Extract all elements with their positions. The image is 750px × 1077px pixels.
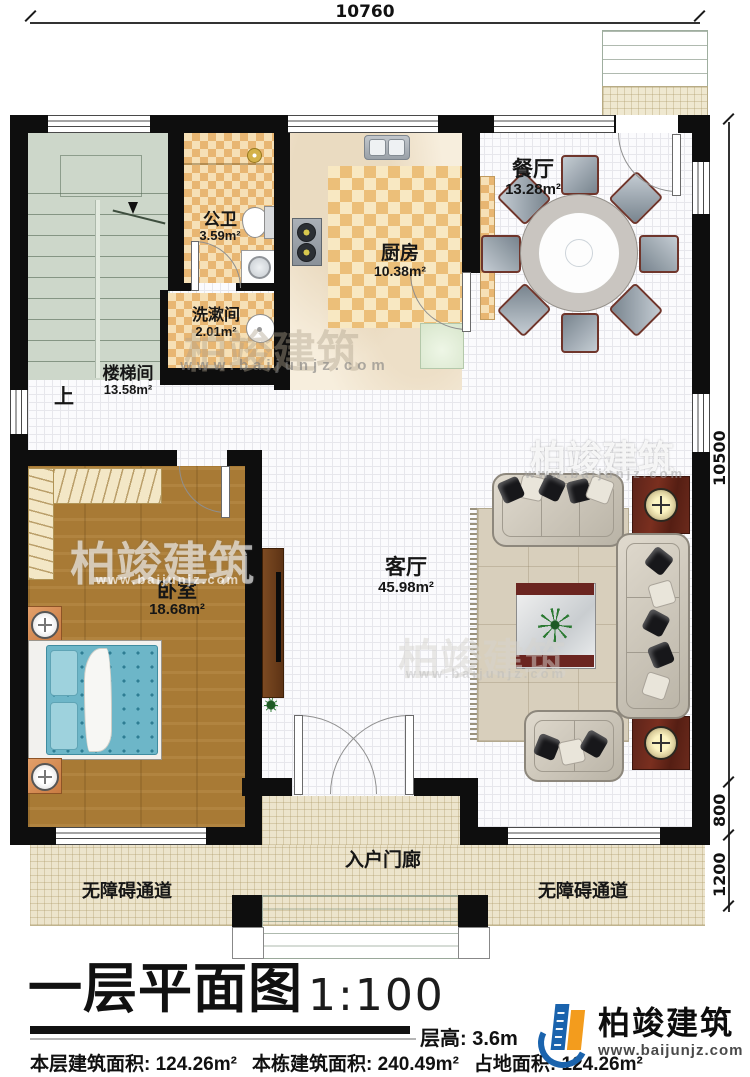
wall <box>160 290 168 370</box>
wall <box>236 283 274 291</box>
dimension-tick <box>693 10 705 22</box>
kitchen-sink-bowl <box>388 139 405 156</box>
dimension-right-value: 10500 <box>710 398 729 518</box>
wall <box>414 778 478 796</box>
room-name: 洗漱间 <box>192 307 240 324</box>
window <box>508 827 660 845</box>
stair-landing-line <box>60 155 142 197</box>
stat-label: 本层建筑面积: <box>30 1054 150 1075</box>
dining-chair <box>639 235 679 273</box>
floor-plan-canvas: 楼梯间 13.58m² 上 公卫 3.59m² 洗漱间 2.01m² 厨房 10… <box>0 0 750 1077</box>
wall <box>10 450 177 466</box>
window <box>692 394 710 452</box>
porch-column-base <box>458 927 490 959</box>
nightstand-lamp-icon <box>31 763 59 791</box>
room-label-bathroom: 公卫 3.59m² <box>199 210 240 244</box>
floor-height: 层高: 3.6m <box>420 1022 518 1051</box>
room-label-walkway-left: 无障碍通道 <box>82 877 172 903</box>
door-leaf <box>294 715 303 795</box>
window <box>48 115 150 133</box>
wall <box>10 115 28 845</box>
dining-chair <box>561 155 599 195</box>
tv-icon <box>276 572 281 662</box>
room-name: 客厅 <box>385 556 427 579</box>
room-label-porch: 入户门廊 <box>345 845 421 872</box>
wall <box>462 133 480 273</box>
bathroom-counter-line <box>184 163 274 165</box>
dining-chair <box>561 313 599 353</box>
rug-fringe <box>470 508 477 740</box>
dimension-tick <box>24 10 36 22</box>
room-name: 餐厅 <box>512 158 554 181</box>
room-area: 13.28m² <box>505 182 561 199</box>
room-label-living: 客厅 45.98m² <box>378 556 434 596</box>
room-area: 45.98m² <box>378 580 434 597</box>
room-label-kitchen: 厨房 10.38m² <box>374 243 426 280</box>
room-label-bedroom: 卧室 18.68m² <box>149 580 205 619</box>
window <box>288 115 438 133</box>
window <box>692 162 710 214</box>
dimension-top-value: 10760 <box>315 2 415 22</box>
room-area: 2.01m² <box>192 325 240 340</box>
entrance-steps <box>262 895 460 959</box>
coffee-table-shelf <box>516 583 594 595</box>
door-leaf <box>405 715 414 795</box>
kitchen-sink-bowl <box>369 139 386 156</box>
brand-logo <box>538 1000 594 1062</box>
porch-column <box>232 895 262 927</box>
table-lamp-icon <box>644 726 678 760</box>
room-label-stairwell: 楼梯间 13.58m² <box>103 364 154 398</box>
door-leaf <box>191 241 199 291</box>
room-area: 10.38m² <box>374 264 426 280</box>
wall <box>227 450 262 466</box>
up-label: 上 <box>54 380 74 409</box>
room-area: 18.68m² <box>149 602 205 619</box>
exterior-steps-north <box>602 30 708 88</box>
porch-column-base <box>232 927 264 959</box>
stat-label: 本栋建筑面积: <box>252 1054 372 1075</box>
dining-chair <box>481 235 521 273</box>
room-label-walkway-right: 无障碍通道 <box>538 877 628 903</box>
wall <box>274 133 290 390</box>
stat-item: 本层建筑面积: 124.26m² <box>30 1049 237 1076</box>
porch-floor <box>262 796 460 845</box>
wall <box>692 115 710 845</box>
room-name: 楼梯间 <box>103 364 154 383</box>
page-title: 一层平面图 <box>28 962 303 1016</box>
washing-machine-door-icon <box>248 256 271 279</box>
kitchen-mat <box>420 323 464 369</box>
nightstand-lamp-icon <box>31 611 59 639</box>
bed-sheet-fold <box>84 648 112 752</box>
drawing-scale: 1:100 <box>308 974 445 1018</box>
room-area: 13.58m² <box>103 383 154 398</box>
window <box>494 115 614 133</box>
window <box>56 827 206 845</box>
dimension-porch-value: 800 <box>710 784 729 836</box>
dimension-walkway-value: 1200 <box>710 843 729 907</box>
title-underline-thin <box>30 1038 416 1040</box>
stove-burner-icon <box>297 243 316 262</box>
bed-pillow <box>50 650 78 696</box>
plant-icon <box>264 698 278 712</box>
brand-name: 柏竣建筑 <box>598 1006 734 1041</box>
floor-drain-icon <box>247 148 262 163</box>
room-label-washroom: 洗漱间 2.01m² <box>192 307 240 339</box>
stove-burner-icon <box>297 223 316 242</box>
exterior-landing-north <box>602 86 708 117</box>
wall <box>168 133 184 290</box>
dimension-line-top <box>30 22 700 24</box>
window <box>10 390 28 434</box>
door-leaf <box>462 272 471 332</box>
door-leaf <box>672 134 681 196</box>
door-opening <box>616 115 678 133</box>
stat-item: 本栋建筑面积: 240.49m² <box>252 1049 459 1076</box>
table-lamp-icon <box>644 488 678 522</box>
stair-stringer <box>95 200 100 378</box>
wall <box>160 368 274 385</box>
room-name: 公卫 <box>203 210 237 229</box>
washbasin-drain-icon <box>257 327 262 332</box>
porch-column <box>458 895 488 927</box>
room-label-dining: 餐厅 13.28m² <box>505 158 561 198</box>
wall <box>460 796 478 845</box>
room-name: 卧室 <box>157 580 197 602</box>
stat-value: 240.49m² <box>378 1054 459 1075</box>
room-name: 厨房 <box>381 243 419 264</box>
dining-table-center <box>565 239 593 267</box>
stat-value: 124.26m² <box>156 1054 237 1075</box>
wardrobe <box>28 468 54 580</box>
plant-icon <box>538 608 572 642</box>
room-area: 3.59m² <box>199 229 240 244</box>
title-underline <box>30 1026 410 1034</box>
stair-direction-arrow <box>128 202 138 214</box>
wall <box>245 450 262 845</box>
bed-pillow <box>50 702 78 750</box>
door-leaf <box>221 466 230 518</box>
coffee-table-shelf <box>516 655 594 667</box>
brand-site: www.baijunjz.com <box>598 1042 743 1059</box>
